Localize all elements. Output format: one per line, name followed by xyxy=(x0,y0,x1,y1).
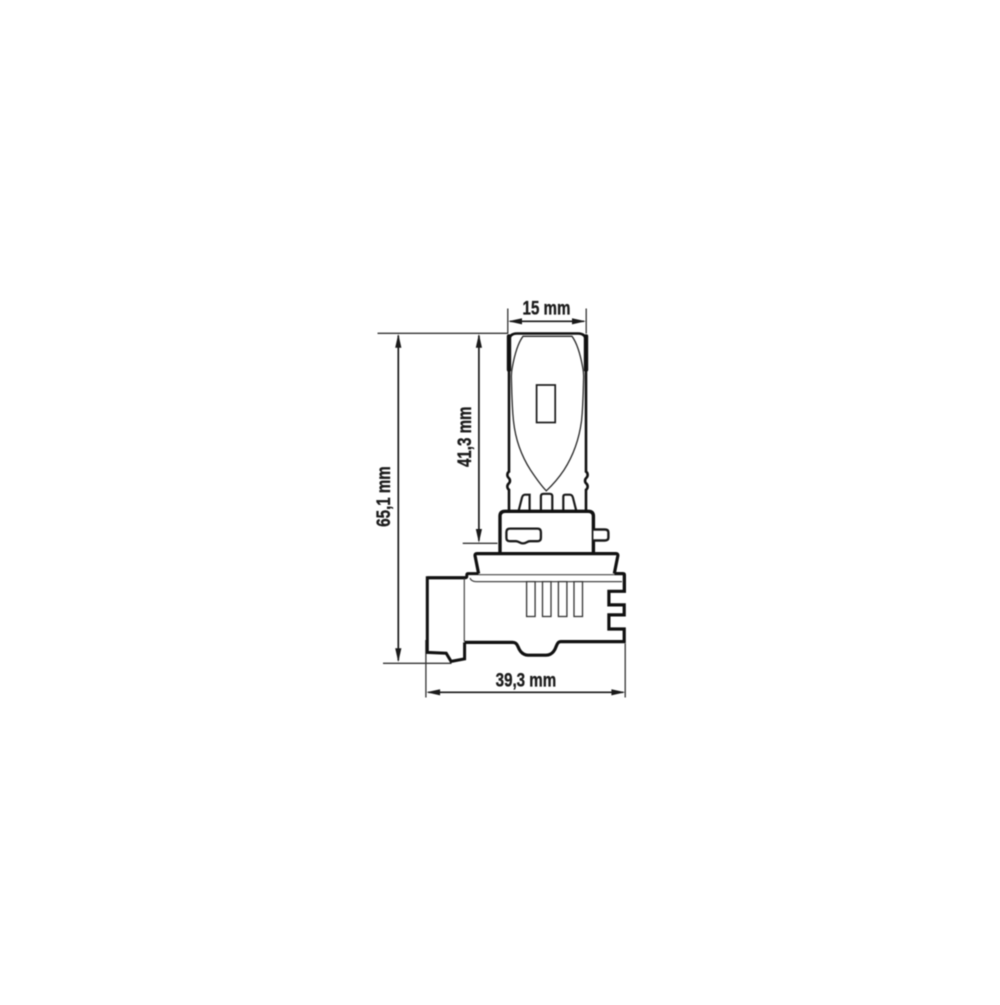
svg-text:65,1 mm: 65,1 mm xyxy=(372,466,394,526)
svg-text:15 mm: 15 mm xyxy=(523,297,571,319)
svg-text:39,3 mm: 39,3 mm xyxy=(496,669,556,691)
svg-text:41,3 mm: 41,3 mm xyxy=(453,407,475,467)
